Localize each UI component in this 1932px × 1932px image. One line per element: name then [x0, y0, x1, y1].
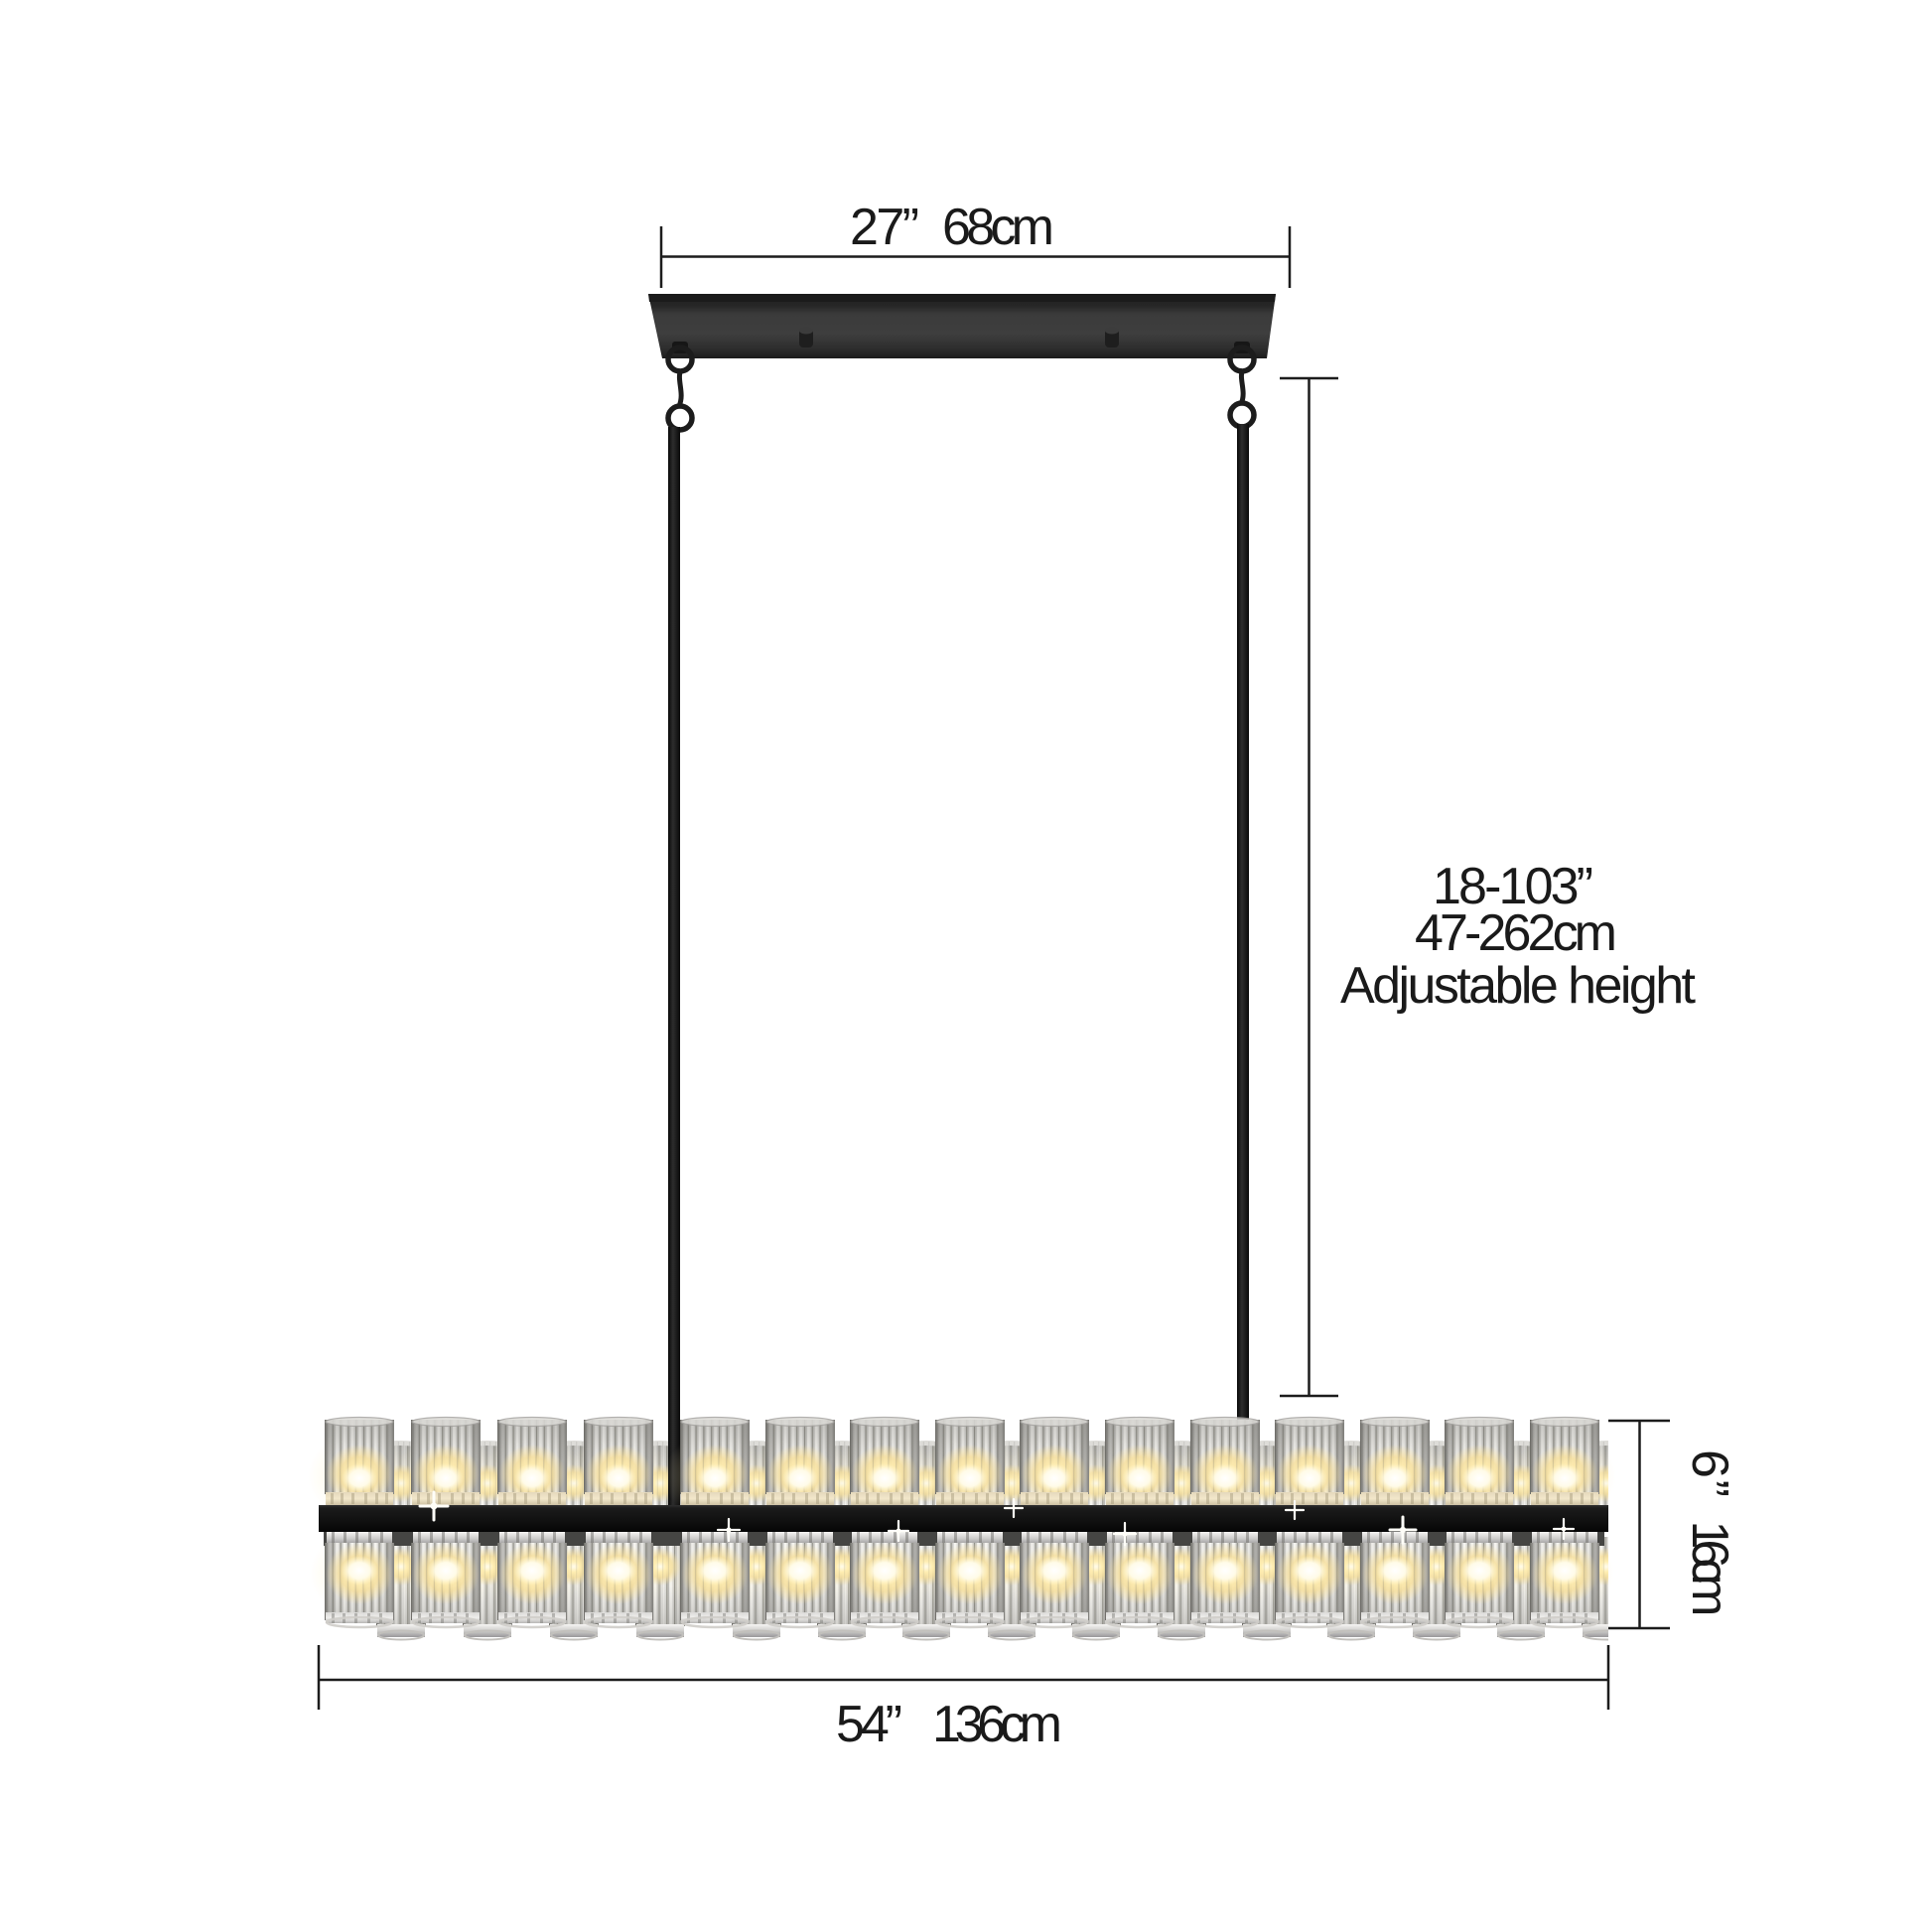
svg-text:6”: 6”: [1681, 1449, 1738, 1497]
svg-text:27”: 27”: [850, 199, 919, 256]
svg-text:16cm: 16cm: [1681, 1521, 1738, 1617]
svg-text:54”: 54”: [836, 1696, 902, 1753]
svg-text:136cm: 136cm: [932, 1696, 1062, 1753]
svg-text:47-262cm: 47-262cm: [1415, 904, 1617, 962]
svg-text:68cm: 68cm: [942, 199, 1054, 256]
svg-text:Adjustable height: Adjustable height: [1340, 957, 1697, 1015]
